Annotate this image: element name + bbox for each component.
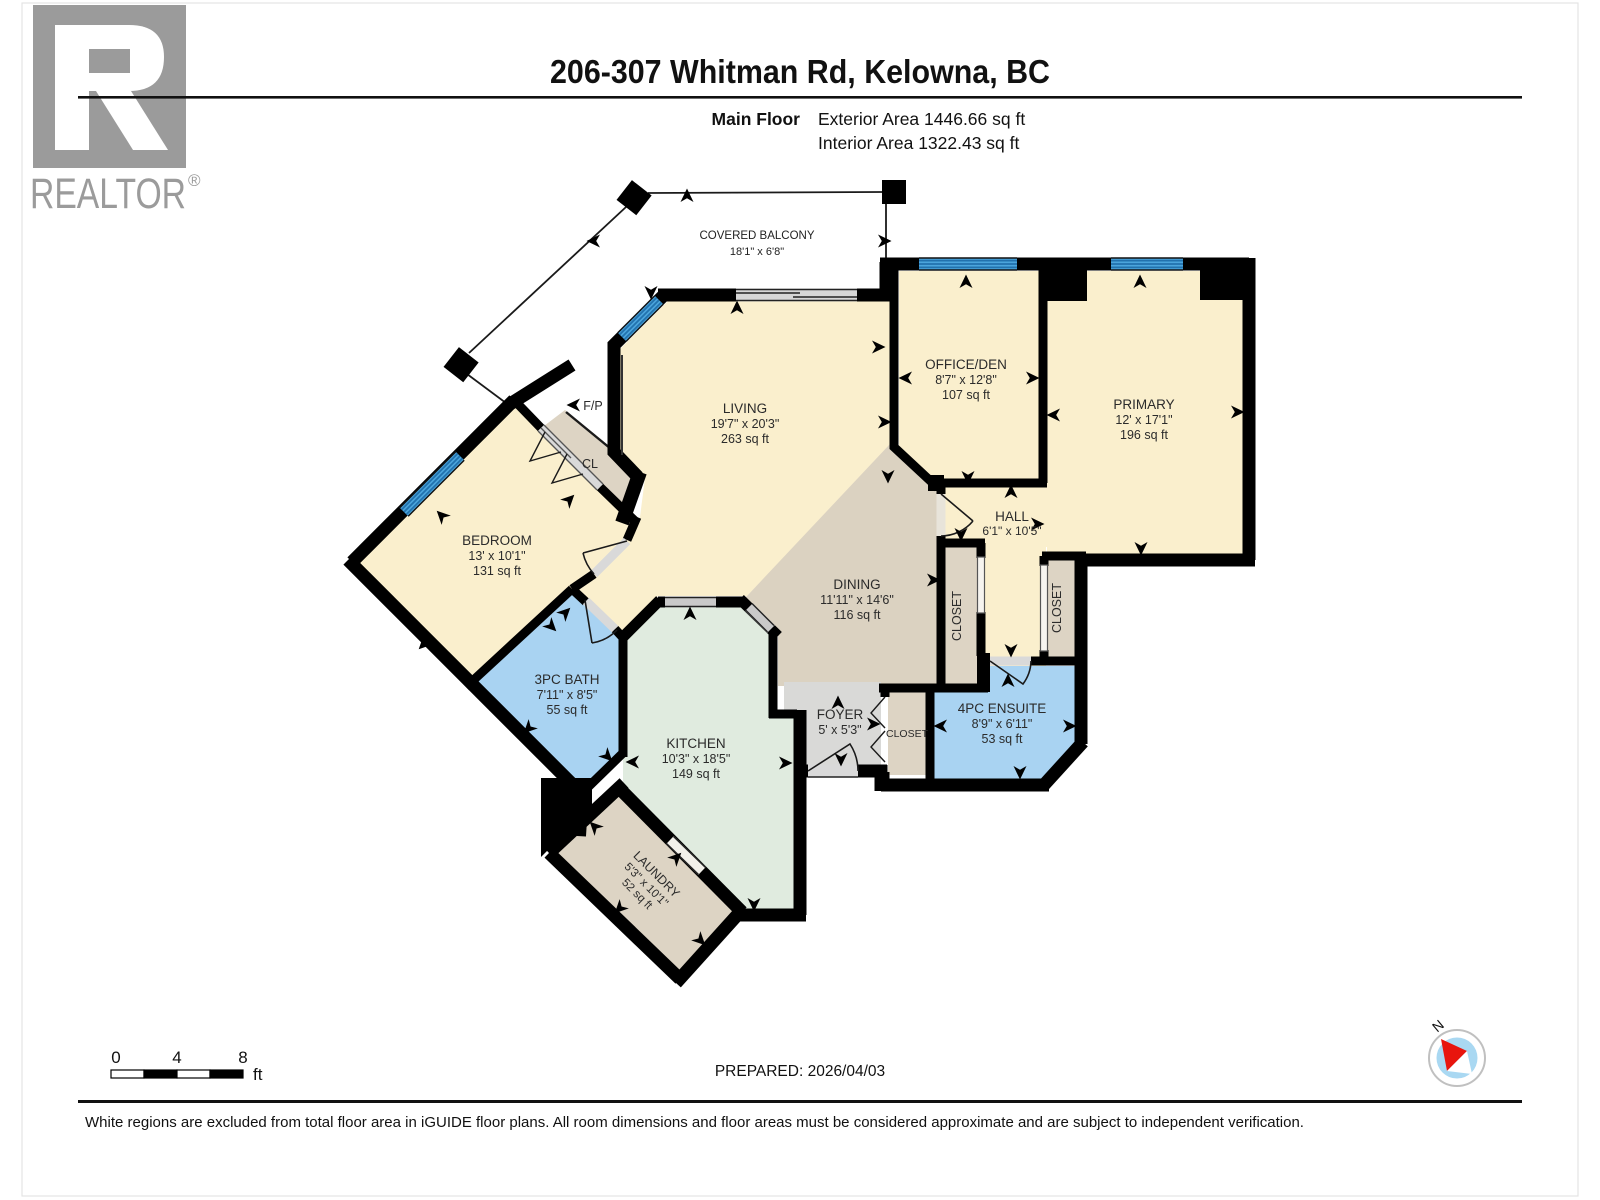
svg-text:Main Floor: Main Floor — [712, 109, 801, 129]
svg-text:18'1" x 6'8": 18'1" x 6'8" — [730, 246, 784, 258]
svg-text:CLOSET: CLOSET — [886, 728, 929, 740]
svg-text:12' x 17'1": 12' x 17'1" — [1115, 413, 1172, 427]
svg-text:Interior Area 1322.43 sq ft: Interior Area 1322.43 sq ft — [818, 133, 1020, 153]
svg-text:®: ® — [188, 171, 201, 190]
svg-text:8: 8 — [238, 1048, 247, 1067]
svg-text:107 sq ft: 107 sq ft — [942, 388, 990, 402]
svg-text:206-307 Whitman Rd, Kelowna, B: 206-307 Whitman Rd, Kelowna, BC — [550, 53, 1050, 90]
svg-text:13' x 10'1": 13' x 10'1" — [468, 549, 525, 563]
svg-text:116 sq ft: 116 sq ft — [833, 608, 881, 622]
svg-text:HALL: HALL — [995, 509, 1029, 524]
svg-text:10'3" x 18'5": 10'3" x 18'5" — [662, 752, 731, 766]
svg-text:White regions are excluded fro: White regions are excluded from total fl… — [85, 1114, 1304, 1131]
svg-text:196 sq ft: 196 sq ft — [1120, 428, 1168, 442]
svg-text:OFFICE/DEN: OFFICE/DEN — [925, 357, 1007, 372]
svg-text:6'1" x 10'5": 6'1" x 10'5" — [982, 524, 1041, 538]
svg-text:11'11" x 14'6": 11'11" x 14'6" — [820, 593, 894, 607]
svg-text:REALTOR: REALTOR — [30, 170, 186, 218]
svg-text:3PC BATH: 3PC BATH — [534, 672, 599, 687]
svg-text:LIVING: LIVING — [723, 401, 767, 416]
svg-text:CL: CL — [582, 457, 598, 471]
svg-text:19'7" x 20'3": 19'7" x 20'3" — [711, 417, 780, 431]
svg-text:PREPARED: 2026/04/03: PREPARED: 2026/04/03 — [715, 1063, 885, 1080]
svg-text:5' x 5'3": 5' x 5'3" — [818, 723, 861, 737]
svg-text:149 sq ft: 149 sq ft — [672, 767, 720, 781]
svg-text:PRIMARY: PRIMARY — [1113, 397, 1174, 412]
svg-text:4: 4 — [172, 1048, 181, 1067]
svg-text:263 sq ft: 263 sq ft — [721, 432, 769, 446]
svg-text:F/P: F/P — [583, 399, 602, 413]
svg-text:ft: ft — [253, 1065, 263, 1084]
svg-text:55 sq ft: 55 sq ft — [547, 703, 589, 717]
svg-text:COVERED BALCONY: COVERED BALCONY — [699, 230, 814, 242]
svg-text:53 sq ft: 53 sq ft — [982, 732, 1024, 746]
svg-text:7'11" x 8'5": 7'11" x 8'5" — [537, 688, 598, 702]
svg-text:8'7" x 12'8": 8'7" x 12'8" — [935, 373, 997, 387]
svg-text:CLOSET: CLOSET — [1050, 583, 1064, 633]
svg-text:BEDROOM: BEDROOM — [462, 533, 532, 548]
svg-text:KITCHEN: KITCHEN — [666, 736, 725, 751]
svg-text:8'9" x 6'11": 8'9" x 6'11" — [972, 717, 1033, 731]
svg-text:0: 0 — [111, 1048, 120, 1067]
svg-text:Exterior Area 1446.66 sq ft: Exterior Area 1446.66 sq ft — [818, 109, 1025, 129]
svg-text:DINING: DINING — [833, 577, 880, 592]
svg-text:4PC ENSUITE: 4PC ENSUITE — [958, 701, 1047, 716]
svg-text:FOYER: FOYER — [817, 707, 864, 722]
svg-text:CLOSET: CLOSET — [950, 591, 964, 641]
svg-text:131 sq ft: 131 sq ft — [473, 564, 521, 578]
